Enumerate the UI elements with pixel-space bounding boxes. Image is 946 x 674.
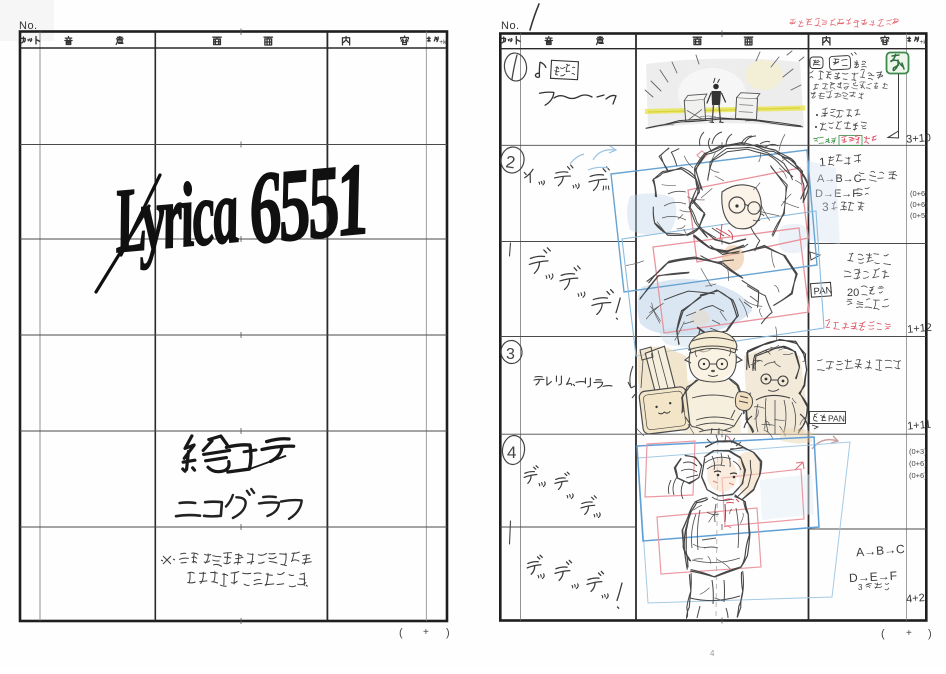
- svg-text:4: 4: [507, 443, 516, 462]
- svg-text:(: (: [399, 627, 403, 639]
- svg-text:(0+6): (0+6): [910, 200, 928, 209]
- svg-text:(0+6): (0+6): [910, 189, 928, 198]
- svg-text:): ): [928, 628, 932, 640]
- svg-text:(0+5): (0+5): [910, 211, 928, 220]
- svg-text:): ): [446, 627, 450, 639]
- svg-text:+k: +k: [920, 39, 928, 46]
- svg-text:(0+6): (0+6): [909, 471, 927, 480]
- svg-text:(: (: [881, 628, 885, 640]
- svg-text:4+2: 4+2: [906, 592, 926, 606]
- svg-text:+: +: [423, 627, 429, 638]
- svg-text:3: 3: [858, 583, 863, 592]
- svg-text:20: 20: [847, 287, 859, 299]
- svg-text:+k: +k: [439, 39, 447, 46]
- svg-text:PAN: PAN: [828, 414, 845, 424]
- svg-text:3: 3: [506, 346, 515, 363]
- svg-text:3+10: 3+10: [906, 132, 932, 146]
- svg-text:1+12: 1+12: [907, 322, 933, 336]
- svg-text:D→E→F: D→E→F: [849, 569, 898, 585]
- svg-text:6551: 6551: [244, 141, 371, 266]
- svg-text:PAN: PAN: [813, 285, 833, 297]
- svg-text:(0+3): (0+3): [909, 447, 927, 456]
- svg-text:4: 4: [710, 649, 715, 658]
- svg-text:Lyrica: Lyrica: [109, 161, 241, 273]
- svg-text:No.: No.: [501, 20, 520, 32]
- svg-text:+: +: [906, 628, 912, 639]
- svg-text:(0+6): (0+6): [909, 459, 927, 468]
- svg-text:1+11: 1+11: [907, 419, 932, 433]
